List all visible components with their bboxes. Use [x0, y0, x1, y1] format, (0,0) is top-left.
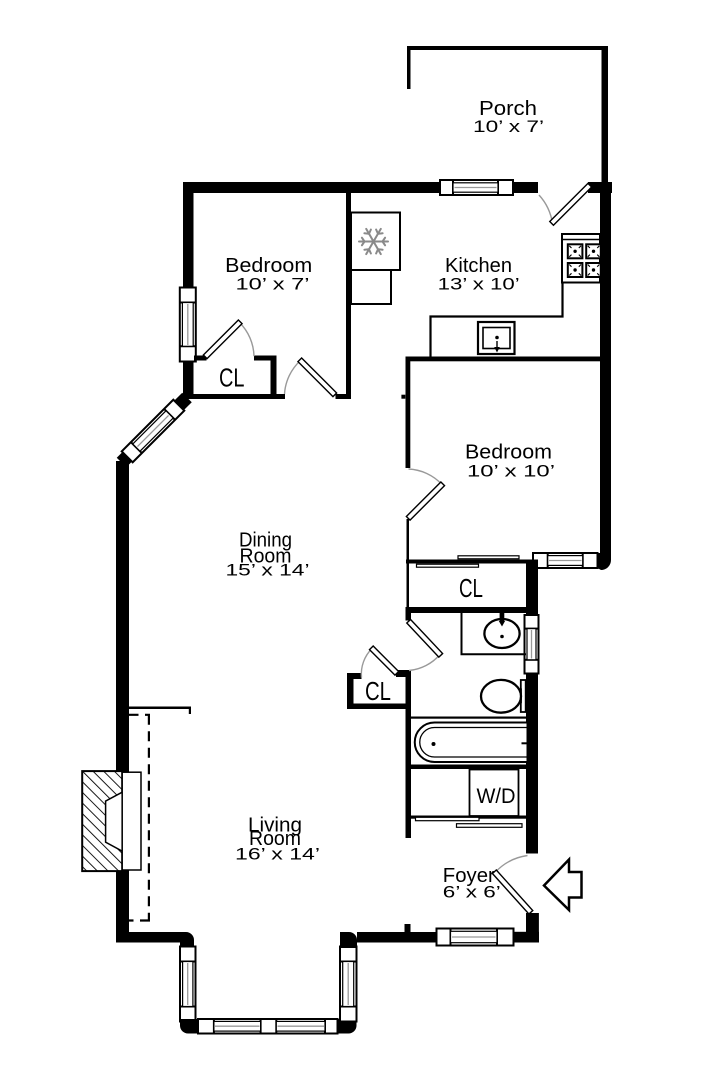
- svg-text:10’ x 10’: 10’ x 10’: [467, 463, 555, 481]
- svg-text:Bedroom: Bedroom: [465, 441, 552, 464]
- svg-text:CL: CL: [459, 575, 483, 603]
- svg-text:10’ x 7’: 10’ x 7’: [236, 276, 310, 294]
- svg-text:W/D: W/D: [477, 784, 516, 808]
- svg-text:13’ x 10’: 13’ x 10’: [438, 276, 520, 294]
- svg-text:16’ x 14’: 16’ x 14’: [235, 846, 320, 864]
- svg-text:6’ x 6’: 6’ x 6’: [443, 884, 501, 902]
- svg-text:15’ x 14’: 15’ x 14’: [226, 562, 310, 580]
- svg-text:10’ x 7’: 10’ x 7’: [473, 118, 544, 136]
- svg-text:CL: CL: [365, 678, 391, 706]
- svg-text:Porch: Porch: [479, 97, 537, 120]
- svg-text:Bedroom: Bedroom: [225, 254, 312, 277]
- svg-text:Kitchen: Kitchen: [445, 254, 512, 277]
- svg-text:CL: CL: [219, 365, 245, 393]
